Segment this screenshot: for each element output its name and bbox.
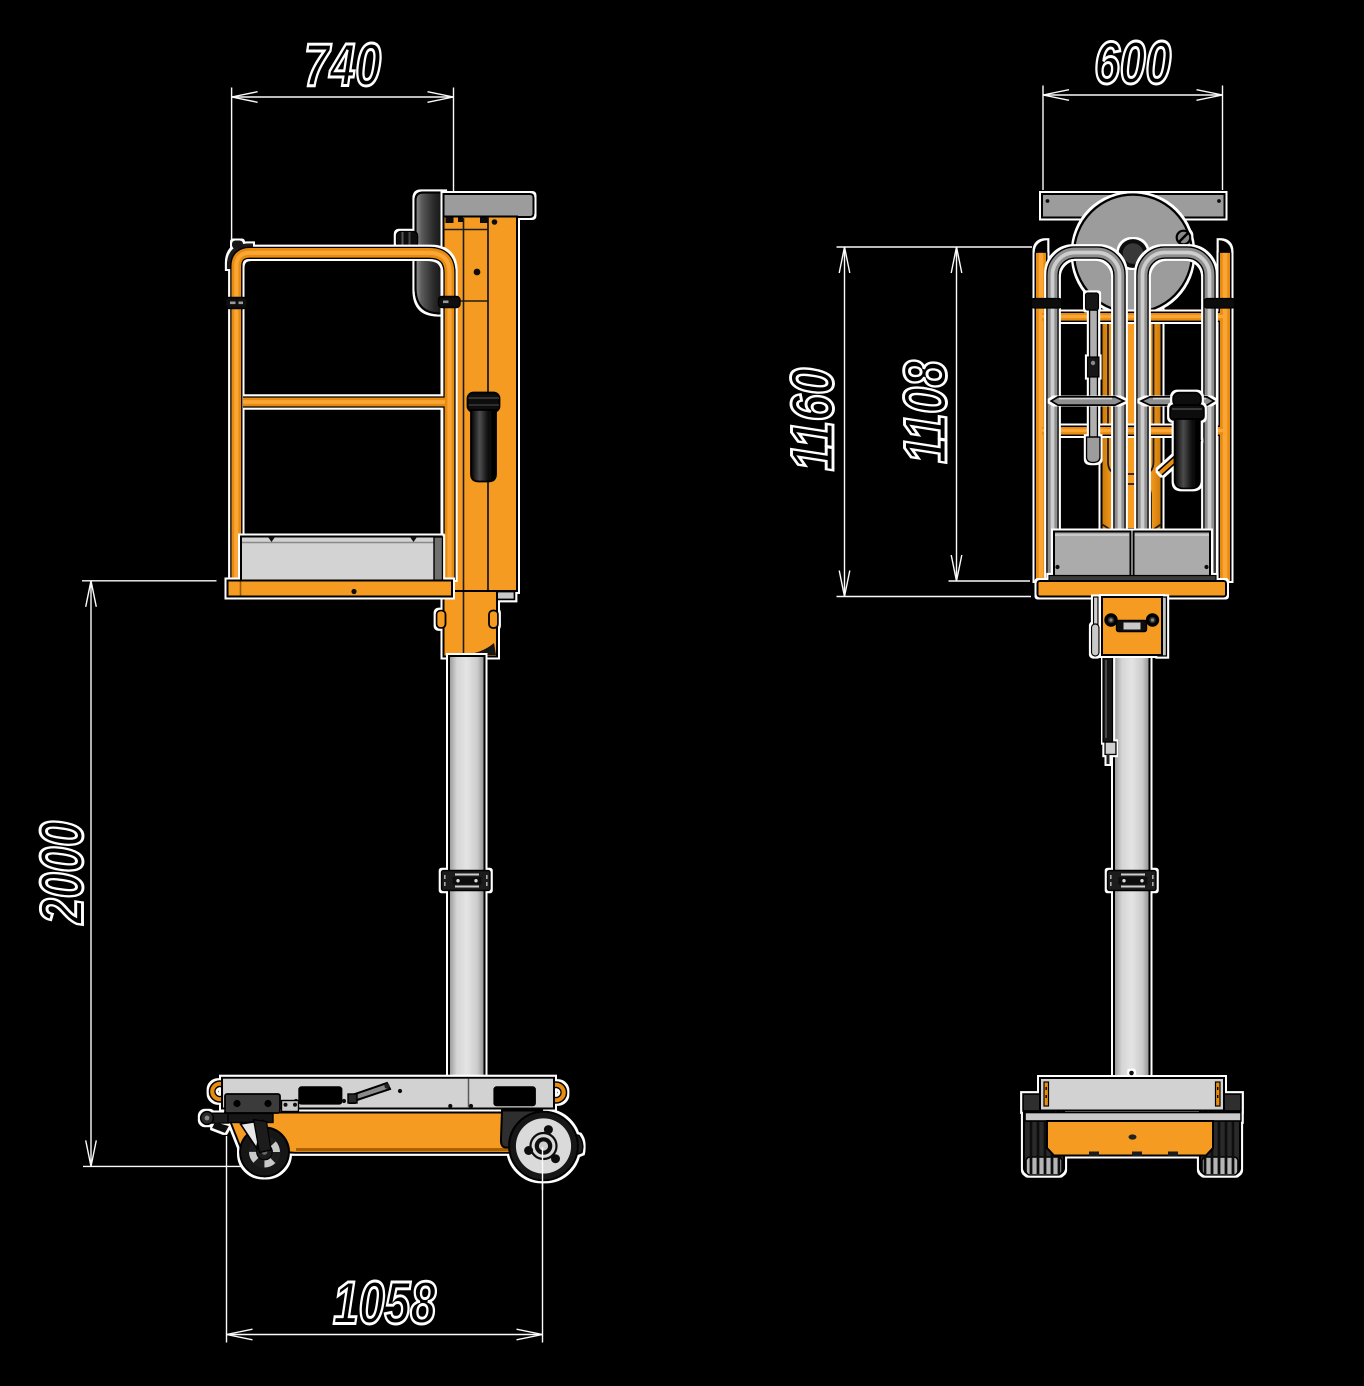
svg-text:1160: 1160 [779, 368, 846, 471]
svg-text:2000: 2000 [28, 821, 95, 925]
svg-text:1108: 1108 [892, 360, 959, 463]
svg-text:740: 740 [304, 32, 381, 99]
svg-text:1058: 1058 [333, 1270, 436, 1337]
svg-text:600: 600 [1094, 30, 1171, 97]
